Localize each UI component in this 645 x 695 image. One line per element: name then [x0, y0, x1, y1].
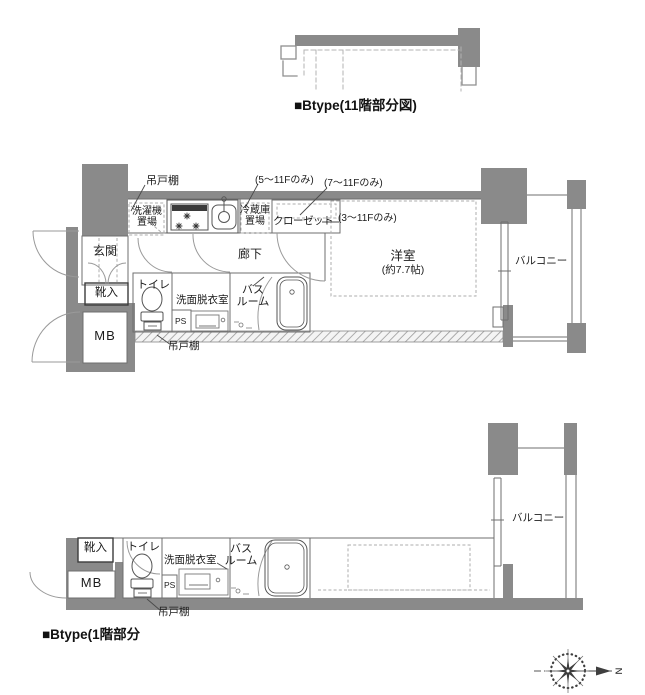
label-closet: クローゼット [273, 216, 333, 228]
toilet-icon [141, 287, 163, 330]
north-label: N [613, 668, 624, 675]
washroom-sink-icon [191, 311, 228, 331]
label-balcony: バルコニー [515, 256, 567, 268]
label-note-5-11f: (5〜11Fのみ) [255, 175, 314, 186]
compass-rose: N [534, 649, 624, 693]
label-fridge-space: 冷蔵庫 置場 [239, 205, 271, 228]
label-bathroom-lower: バス ルーム [222, 543, 260, 568]
floorplan-page: N ■Btype(11階部分図) 吊戸棚 (5〜11Fのみ) (7〜11Fのみ)… [0, 0, 645, 695]
label-meter-box-lower: MB [68, 576, 115, 591]
lower-plan-caption: ■Btype(1階部分 [42, 627, 140, 642]
label-toilet-lower: トイレ [127, 541, 160, 553]
label-washing-machine-space: 洗濯機 置場 [129, 206, 165, 229]
label-note-7-11f: (7〜11Fのみ) [324, 178, 383, 189]
label-western-room: 洋室 [363, 249, 443, 263]
toilet-icon-lower [131, 554, 153, 597]
label-western-room-size: (約7.7帖) [363, 265, 443, 277]
label-meter-box: MB [83, 329, 127, 344]
label-entrance: 玄関 [93, 245, 117, 259]
kitchen-counter [167, 197, 238, 233]
label-toilet: トイレ [137, 279, 170, 291]
label-washroom: 洗面脱衣室 [176, 295, 229, 307]
upper-floor-partial-diagram [281, 28, 480, 91]
label-shoe-box-lower: 靴入 [78, 542, 113, 555]
label-pipe-space: PS [175, 317, 186, 327]
label-corridor: 廊下 [238, 248, 262, 262]
label-hanging-cupboard-top: 吊戸棚 [146, 175, 179, 187]
label-note-3-11f: (3〜11Fのみ) [338, 213, 397, 224]
label-balcony-lower: バルコニー [512, 513, 564, 525]
label-bathroom: バス ルーム [234, 284, 272, 309]
label-hanging-cupboard-lower: 吊戸棚 [158, 607, 190, 619]
upper-plan-caption: ■Btype(11階部分図) [294, 98, 417, 113]
label-hanging-cupboard-bottom: 吊戸棚 [168, 341, 200, 353]
label-washroom-lower: 洗面脱衣室 [164, 555, 217, 567]
lower-plan-walls [66, 423, 583, 610]
washroom-sink-icon-lower [179, 569, 228, 595]
north-arrow-icon [596, 667, 611, 676]
label-pipe-space-lower: PS [164, 581, 175, 591]
lower-plan-dashed [318, 545, 490, 590]
label-shoe-box: 靴入 [85, 287, 128, 300]
